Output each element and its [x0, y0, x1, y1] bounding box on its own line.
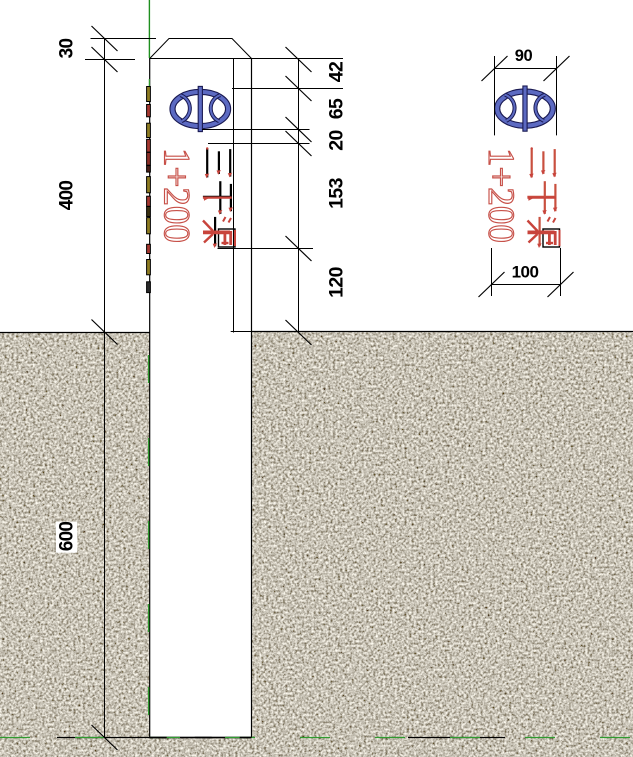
- svg-text:600: 600: [57, 522, 78, 552]
- svg-text:400: 400: [57, 181, 78, 211]
- svg-text:20: 20: [326, 130, 348, 151]
- svg-text:90: 90: [515, 47, 533, 65]
- svg-text:120: 120: [326, 266, 348, 297]
- svg-text:153: 153: [326, 177, 348, 208]
- svg-text:100: 100: [512, 263, 539, 282]
- svg-text:42: 42: [326, 61, 348, 82]
- svg-text:65: 65: [326, 98, 348, 119]
- svg-text:30: 30: [57, 39, 78, 59]
